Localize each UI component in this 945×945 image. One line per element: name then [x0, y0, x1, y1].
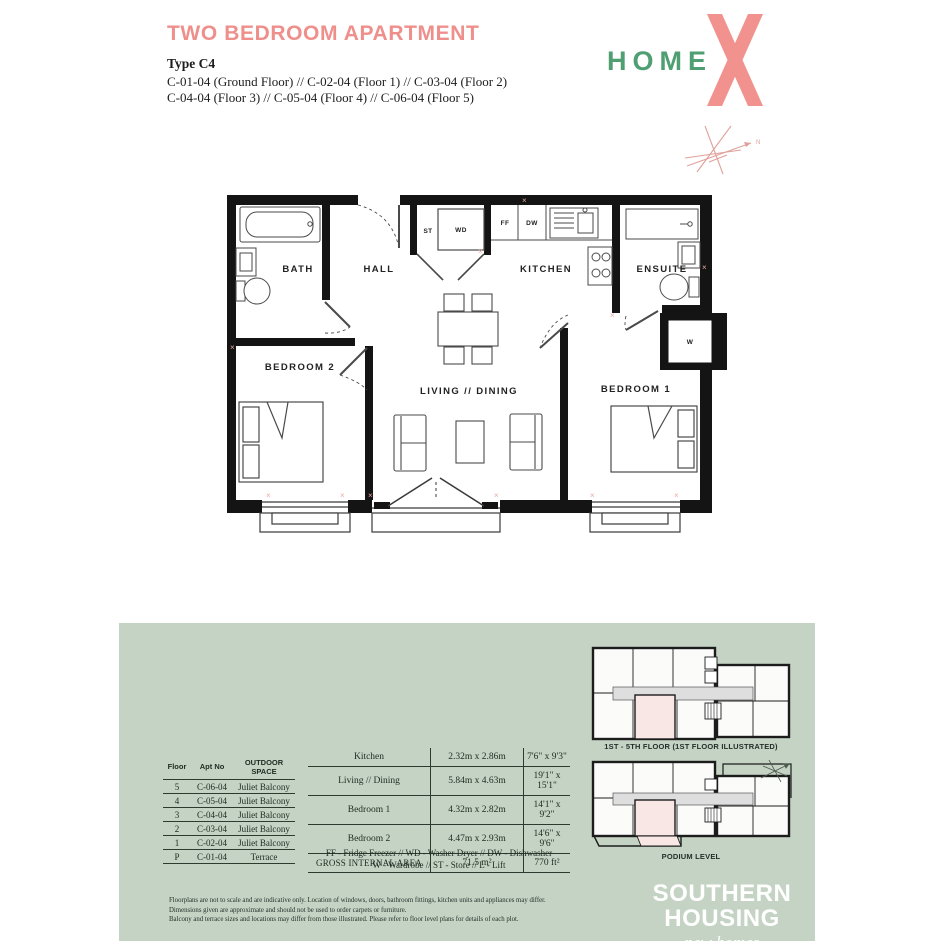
abbreviation-key: FF - Fridge Freezer // WD - Washer Dryer… [308, 847, 570, 871]
page-title: TWO BEDROOM APARTMENT [167, 22, 479, 46]
col-floor: Floor [163, 757, 191, 780]
cell: 5.84m x 4.63m [431, 767, 524, 796]
apartment-floorplan: W [222, 190, 727, 540]
living-dining-label: LIVING // DINING [420, 386, 518, 397]
brand-tagline: new homes [642, 933, 802, 945]
svg-text:×: × [522, 196, 527, 205]
svg-text:N: N [756, 140, 760, 146]
cell: Juliet Balcony [233, 808, 295, 822]
keyplan1-caption: 1ST - 5TH FLOOR (1ST FLOOR ILLUSTRATED) [585, 742, 797, 751]
cell: Juliet Balcony [233, 794, 295, 808]
svg-text:×: × [674, 491, 679, 500]
disclaimer-line2: Dimensions given are approximate and sho… [169, 906, 589, 916]
keyplan-floors-1-5 [585, 645, 797, 741]
col-outdoor: OUTDOOR SPACE [233, 757, 295, 780]
floor-apartment-table: Floor Apt No OUTDOOR SPACE 5 C-06-04 Jul… [163, 757, 295, 864]
cell: 5 [163, 780, 191, 794]
compass-icon: N [683, 116, 767, 180]
cell: C-04-04 [191, 808, 233, 822]
bath-toilet-icon [236, 278, 270, 304]
sofa-icon [394, 415, 426, 471]
disclaimer: Floorplans are not to scale and are indi… [169, 896, 589, 925]
cell: 2.32m x 2.86m [431, 748, 524, 767]
cell: Kitchen [308, 748, 431, 767]
highlighted-apartment [635, 800, 675, 836]
table-row: 1 C-02-04 Juliet Balcony [163, 836, 295, 850]
info-panel: Floor Apt No OUTDOOR SPACE 5 C-06-04 Jul… [119, 623, 815, 941]
key-line1: FF - Fridge Freezer // WD - Washer Dryer… [308, 847, 570, 859]
ensuite-label: ENSUITE [637, 264, 688, 275]
brand-line2: HOUSING [642, 906, 802, 931]
table-row: P C-01-04 Terrace [163, 850, 295, 864]
svg-text:×: × [340, 491, 345, 500]
table-row: 2 C-03-04 Juliet Balcony [163, 822, 295, 836]
cell: 19'1" x 15'1" [524, 767, 571, 796]
disclaimer-line1: Floorplans are not to scale and are indi… [169, 896, 589, 906]
apartment-type: Type C4 [167, 56, 215, 72]
svg-text:×: × [494, 491, 499, 500]
table-row: Bedroom 1 4.32m x 2.82m 14'1" x 9'2" [308, 796, 570, 825]
cell: 1 [163, 836, 191, 850]
cell: Juliet Balcony [233, 822, 295, 836]
cell: Juliet Balcony [233, 780, 295, 794]
svg-text:×: × [478, 247, 483, 256]
homex-logo-text: HOME [607, 46, 712, 77]
bath-label: BATH [282, 264, 313, 275]
cell: 3 [163, 808, 191, 822]
cell: Bedroom 1 [308, 796, 431, 825]
bedroom1-label: BEDROOM 1 [601, 384, 671, 395]
svg-text:×: × [610, 311, 615, 320]
cell: 4.32m x 2.82m [431, 796, 524, 825]
key-line2: W - Wardrobe // ST - Store // L - Lift [308, 859, 570, 871]
cell: 2 [163, 822, 191, 836]
cell: C-05-04 [191, 794, 233, 808]
armchair-icon [510, 414, 542, 470]
bathtub-icon [240, 207, 320, 242]
cell: C-03-04 [191, 822, 233, 836]
highlighted-apartment [635, 695, 675, 739]
cell: Living // Dining [308, 767, 431, 796]
cell: 14'1" x 9'2" [524, 796, 571, 825]
cell: 7'6" x 9'3" [524, 748, 571, 767]
svg-text:×: × [590, 491, 595, 500]
washer-dryer-label: WD [455, 227, 467, 234]
svg-text:×: × [368, 491, 373, 500]
dining-table-icon [438, 294, 498, 364]
stairs-icon [705, 703, 721, 719]
hob-icon [588, 247, 612, 285]
windows [262, 502, 680, 508]
cell: C-02-04 [191, 836, 233, 850]
table-row: Kitchen 2.32m x 2.86m 7'6" x 9'3" [308, 748, 570, 767]
fridge-freezer-label: FF [501, 220, 510, 227]
cell: P [163, 850, 191, 864]
cell: Terrace [233, 850, 295, 864]
southern-housing-logo: SOUTHERN HOUSING new homes [642, 881, 802, 945]
bath-sink-icon [236, 248, 256, 276]
floorplan-page: TWO BEDROOM APARTMENT Type C4 C-01-04 (G… [0, 0, 945, 945]
disclaimer-line3: Balcony and terrace sizes and locations … [169, 915, 589, 925]
table-row: 5 C-06-04 Juliet Balcony [163, 780, 295, 794]
table-row: Living // Dining 5.84m x 4.63m 19'1" x 1… [308, 767, 570, 796]
apartment-list-line1: C-01-04 (Ground Floor) // C-02-04 (Floor… [167, 74, 507, 90]
brand-line1: SOUTHERN [642, 881, 802, 906]
store-label: ST [423, 228, 432, 235]
cell: 4 [163, 794, 191, 808]
highlighted-terrace [637, 836, 681, 846]
dishwasher-label: DW [526, 220, 538, 227]
svg-text:×: × [266, 491, 271, 500]
ensuite-bath-icon [626, 209, 698, 239]
stairs-icon [705, 808, 721, 822]
keyplan2-caption: PODIUM LEVEL [585, 852, 797, 861]
kitchen-label: KITCHEN [520, 264, 572, 275]
table-row: 4 C-05-04 Juliet Balcony [163, 794, 295, 808]
hall-label: HALL [364, 264, 395, 275]
col-aptno: Apt No [191, 757, 233, 780]
french-doors [374, 478, 498, 509]
table-row: 3 C-04-04 Juliet Balcony [163, 808, 295, 822]
juliet-balconies [260, 513, 680, 532]
coffee-table-icon [456, 421, 484, 463]
kitchen-sink-icon [550, 208, 598, 238]
bedroom2-label: BEDROOM 2 [265, 362, 335, 373]
cell: C-06-04 [191, 780, 233, 794]
bedroom1-bed-icon [611, 406, 697, 472]
ensuite-toilet-icon [660, 274, 699, 300]
homex-logo: HOME [607, 14, 767, 110]
cell: Juliet Balcony [233, 836, 295, 850]
svg-text:×: × [230, 343, 235, 352]
cell: C-01-04 [191, 850, 233, 864]
svg-text:×: × [702, 263, 707, 272]
wardrobe-label: W [687, 339, 694, 346]
apartment-list-line2: C-04-04 (Floor 3) // C-05-04 (Floor 4) /… [167, 90, 474, 106]
keyplan-podium [585, 758, 797, 850]
bedroom2-bed-icon [239, 402, 323, 482]
